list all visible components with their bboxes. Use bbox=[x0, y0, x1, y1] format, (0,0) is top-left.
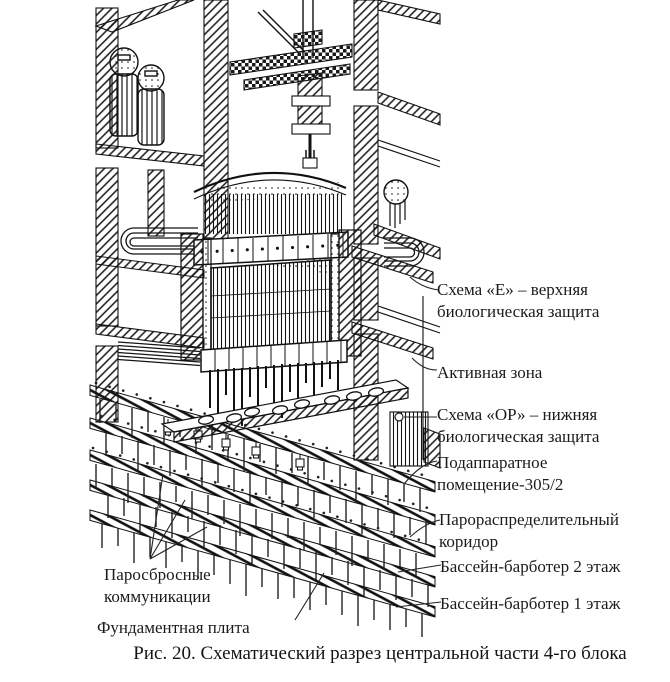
label-foundation-plate: Фундаментная плита bbox=[97, 617, 250, 639]
label-lower-bio-shield: Схема «ОР» – нижняя биологическая защита bbox=[437, 404, 637, 447]
label-subreactor-room: Подаппаратное помещение-305/2 bbox=[437, 452, 612, 495]
label-steam-dump-lines: Паросбросные коммуникации bbox=[104, 564, 254, 607]
label-active-zone: Активная зона bbox=[437, 362, 542, 384]
refueling-machine bbox=[230, 0, 352, 168]
label-steam-distribution-corridor: Парораспределительный коридор bbox=[439, 509, 649, 552]
drum-separators-left bbox=[110, 48, 164, 145]
figure-root: Схема «Е» – верхняя биологическая защита… bbox=[0, 0, 670, 682]
reactor-upper-shield bbox=[194, 173, 348, 265]
label-upper-bio-shield: Схема «Е» – верхняя биологическая защита bbox=[437, 279, 637, 322]
schematic-cross-section-drawing bbox=[0, 0, 670, 682]
reactor-core bbox=[211, 258, 331, 350]
label-bubbler-pool-1: Бассейн-барботер 1 этаж bbox=[440, 593, 620, 615]
figure-caption: Рис. 20. Схематический разрез центрально… bbox=[90, 643, 670, 665]
label-bubbler-pool-2: Бассейн-барботер 2 этаж bbox=[440, 556, 620, 578]
drum-separator-right bbox=[384, 180, 408, 228]
